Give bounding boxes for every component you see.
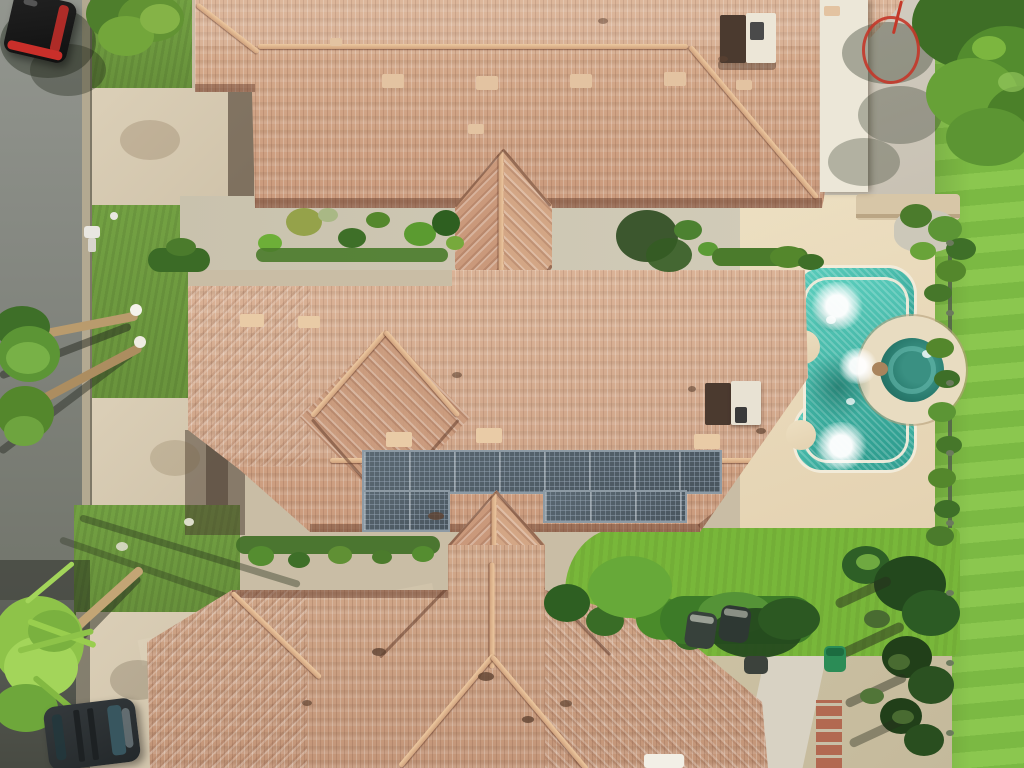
yard-object xyxy=(744,656,768,674)
yard-object xyxy=(946,590,954,596)
yard-object xyxy=(946,520,954,526)
yard-object xyxy=(946,450,954,456)
yard-object xyxy=(946,380,954,386)
suv-dark xyxy=(42,692,146,768)
objects-layer xyxy=(0,0,1024,768)
yard-object xyxy=(946,730,954,736)
aerial-photo xyxy=(0,0,1024,768)
yard-object xyxy=(946,310,954,316)
yard-object xyxy=(826,648,844,656)
yard-object xyxy=(862,16,920,84)
yard-object xyxy=(946,660,954,666)
yard-object xyxy=(946,240,954,246)
